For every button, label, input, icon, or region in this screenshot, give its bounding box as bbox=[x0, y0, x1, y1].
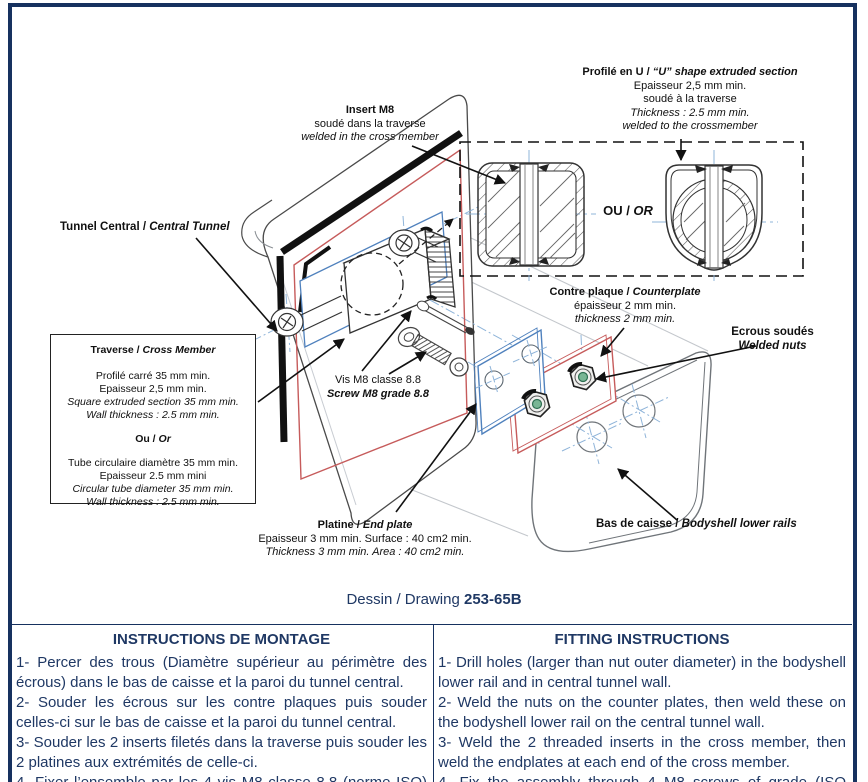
label-u-section: Profilé en U / “U” shape extruded sectio… bbox=[520, 66, 860, 134]
instructions-en-title: FITTING INSTRUCTIONS bbox=[438, 630, 846, 650]
spec-line: Epaisseur 2,5 mm min. bbox=[51, 383, 255, 396]
drawing-number: 253-65B bbox=[464, 591, 522, 608]
spec-title: Traverse / Cross Member bbox=[51, 344, 255, 357]
label-counterplate: Contre plaque / Counterplate épaisseur 2… bbox=[530, 286, 720, 327]
spec-line: Wall thickness : 2.5 mm min. bbox=[51, 496, 255, 509]
label-screw-m8: Vis M8 classe 8.8 Screw M8 grade 8.8 bbox=[298, 374, 458, 401]
instructions-table: INSTRUCTIONS DE MONTAGE 1- Percer des tr… bbox=[12, 624, 852, 782]
drawing-caption: Dessin / Drawing 253-65B bbox=[0, 591, 868, 608]
spec-line: Square extruded section 35 mm min. bbox=[51, 396, 255, 409]
label-ou-or: OU / OR bbox=[588, 203, 668, 218]
instruction-step: 3- Weld the 2 threaded inserts in the cr… bbox=[438, 733, 846, 773]
label-insert-m8: Insert M8 soudé dans la traverse welded … bbox=[280, 104, 460, 145]
spec-line: Profilé carré 35 mm min. bbox=[51, 370, 255, 383]
instruction-step: 2- Souder les écrous sur les contre plaq… bbox=[16, 693, 427, 733]
instructions-french: INSTRUCTIONS DE MONTAGE 1- Percer des tr… bbox=[12, 625, 433, 782]
spec-line: Circular tube diameter 35 mm min. bbox=[51, 483, 255, 496]
instruction-step: 4- Fixer l’ensemble par les 4 vis M8 cla… bbox=[16, 773, 427, 782]
instruction-step: 4- Fix the assembly through 4 M8 screws … bbox=[438, 773, 846, 782]
section-square bbox=[466, 150, 596, 281]
cross-member-spec-box: Traverse / Cross Member Profilé carré 35… bbox=[50, 334, 256, 504]
instructions-fr-title: INSTRUCTIONS DE MONTAGE bbox=[16, 630, 427, 650]
section-round bbox=[652, 150, 778, 281]
label-central-tunnel: Tunnel Central / Central Tunnel bbox=[60, 221, 300, 235]
spec-line: Wall thickness : 2.5 mm min. bbox=[51, 409, 255, 422]
instructions-english: FITTING INSTRUCTIONS 1- Drill holes (lar… bbox=[433, 625, 852, 782]
document-page: Profilé en U / “U” shape extruded sectio… bbox=[0, 0, 868, 782]
instruction-step: 1- Drill holes (larger than nut outer di… bbox=[438, 653, 846, 693]
spec-or: Ou / Or bbox=[51, 433, 255, 446]
spec-line: Epaisseur 2.5 mm mini bbox=[51, 470, 255, 483]
instruction-step: 1- Percer des trous (Diamètre supérieur … bbox=[16, 653, 427, 693]
instruction-step: 3- Souder les 2 inserts filetés dans la … bbox=[16, 733, 427, 773]
label-end-plate: Platine / End plate Epaisseur 3 mm min. … bbox=[230, 519, 500, 560]
label-bodyshell-rails: Bas de caisse / Bodyshell lower rails bbox=[596, 518, 856, 532]
spec-line: Tube circulaire diamètre 35 mm min. bbox=[51, 457, 255, 470]
label-welded-nuts: Ecrous soudés Welded nuts bbox=[700, 326, 845, 353]
instruction-step: 2- Weld the nuts on the counter plates, … bbox=[438, 693, 846, 733]
